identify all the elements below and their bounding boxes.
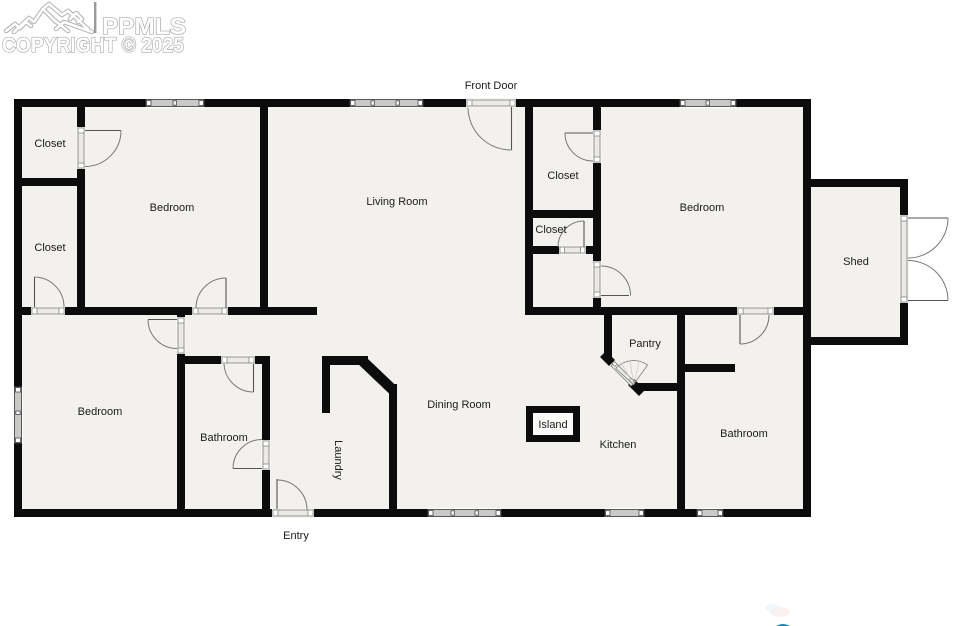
svg-text:Bathroom: Bathroom xyxy=(720,428,768,440)
svg-text:Laundry: Laundry xyxy=(332,440,344,480)
svg-text:Bedroom: Bedroom xyxy=(78,406,123,418)
svg-text:Closet: Closet xyxy=(34,138,65,150)
svg-text:Bedroom: Bedroom xyxy=(680,202,725,214)
svg-text:Closet: Closet xyxy=(34,242,65,254)
svg-text:Dining Room: Dining Room xyxy=(427,399,491,411)
svg-text:COPYRIGHT © 2025: COPYRIGHT © 2025 xyxy=(2,34,184,57)
svg-text:Front Door: Front Door xyxy=(465,80,518,92)
svg-text:Pantry: Pantry xyxy=(629,338,661,350)
svg-text:Shed: Shed xyxy=(843,256,869,268)
svg-text:Bathroom: Bathroom xyxy=(200,432,248,444)
svg-text:Island: Island xyxy=(538,419,567,431)
svg-text:Bedroom: Bedroom xyxy=(150,202,195,214)
svg-text:Closet: Closet xyxy=(547,170,578,182)
svg-text:Kitchen: Kitchen xyxy=(600,439,637,451)
svg-text:Living Room: Living Room xyxy=(366,196,427,208)
svg-text:Closet: Closet xyxy=(535,224,566,236)
svg-text:Entry: Entry xyxy=(283,530,309,542)
